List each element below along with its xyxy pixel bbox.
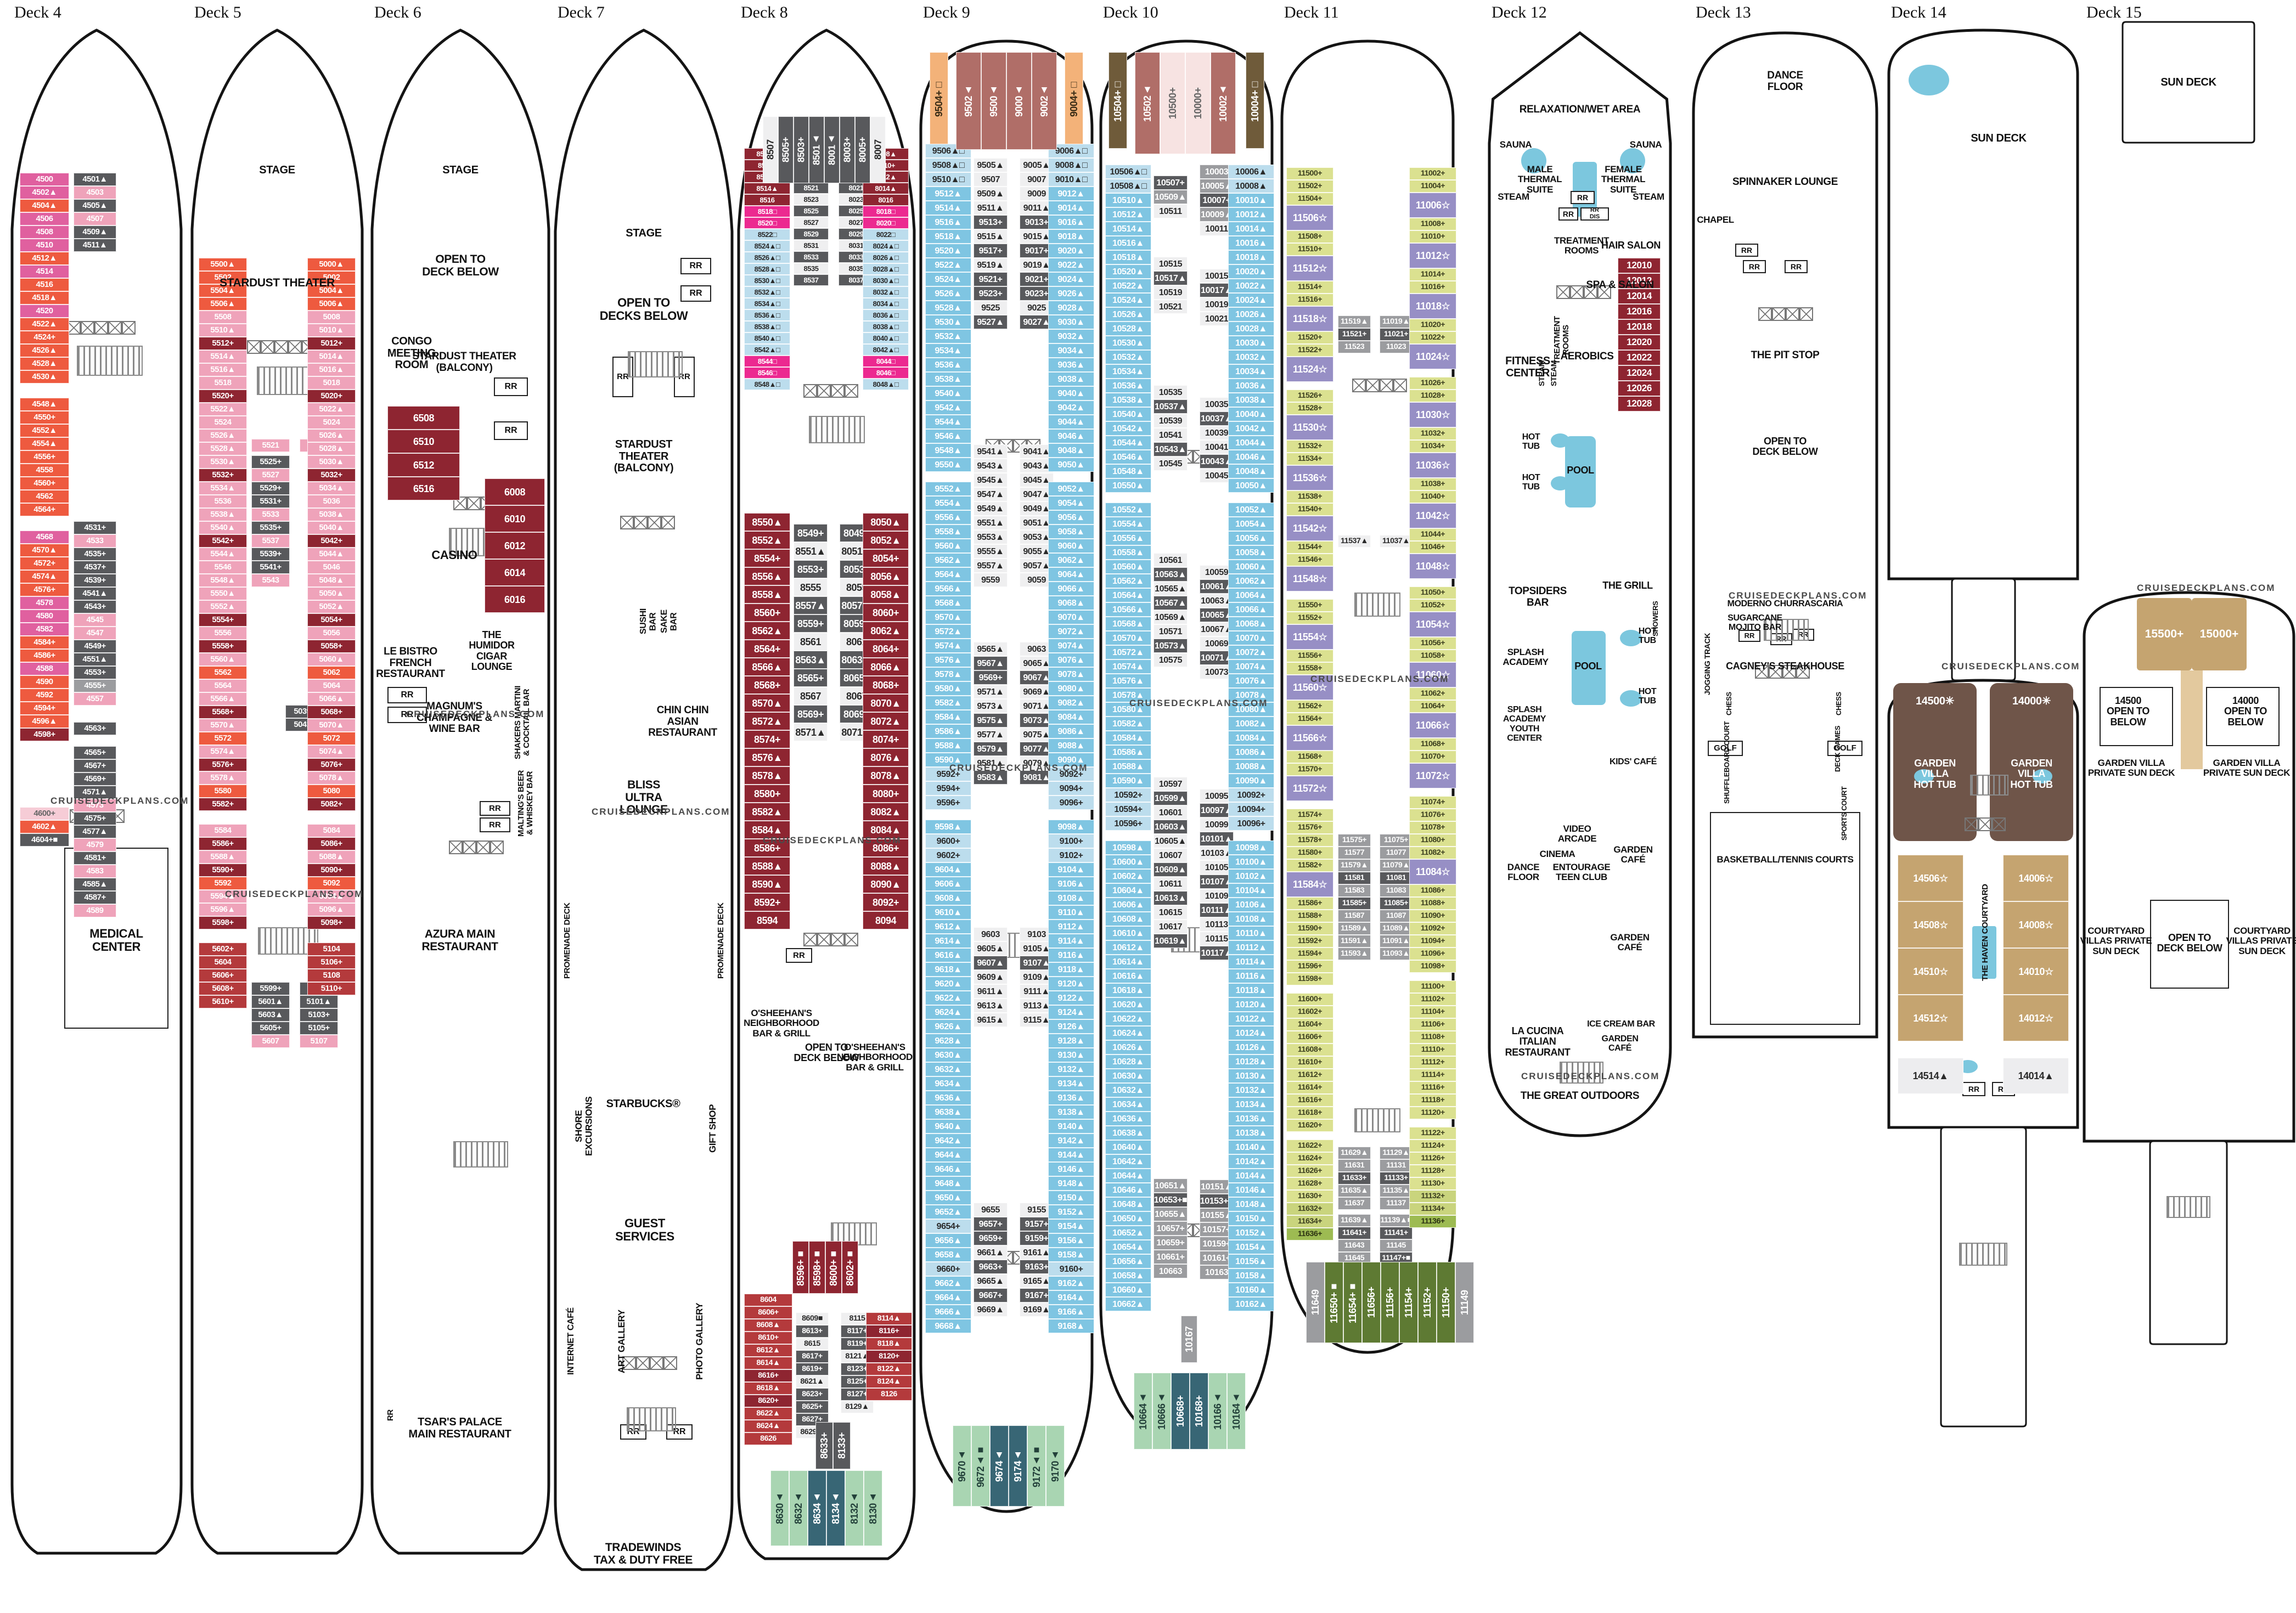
cabin[interactable]: 5586+	[199, 837, 247, 850]
cabin[interactable]: 8066▲	[863, 658, 909, 676]
cabin[interactable]: 11118+	[1409, 1094, 1456, 1107]
cabin[interactable]: 11081	[1380, 872, 1413, 884]
cabin[interactable]: 8556▲	[744, 567, 790, 585]
cabin[interactable]: 11030☆	[1409, 402, 1456, 427]
cabin[interactable]: 9604▲	[925, 862, 971, 877]
cabin[interactable]: 9644▲	[925, 1148, 971, 1162]
cabin[interactable]: 9642▲	[925, 1133, 971, 1148]
cabin[interactable]: 4516	[20, 278, 69, 291]
cabin[interactable]: 10640▲	[1105, 1140, 1151, 1154]
cabin[interactable]: 8620+	[744, 1395, 792, 1407]
cabin[interactable]: 11649	[1306, 1262, 1325, 1343]
cabin[interactable]: 10070▲	[1228, 631, 1274, 645]
cabin[interactable]: 11637	[1338, 1197, 1371, 1210]
cabin[interactable]: 4537+	[74, 561, 116, 574]
cabin[interactable]: 9016▲	[1048, 215, 1094, 229]
cabin[interactable]: 8070▲	[863, 694, 909, 712]
cabin[interactable]: 11133+	[1380, 1172, 1413, 1185]
cabin[interactable]: 11062+	[1409, 687, 1456, 700]
cabin[interactable]: 9648▲	[925, 1176, 971, 1191]
cabin[interactable]: 9120▲	[1048, 977, 1094, 991]
cabin[interactable]: 11010+	[1409, 230, 1456, 243]
cabin[interactable]: 4572+	[20, 557, 69, 570]
cabin[interactable]: 9168▲	[1048, 1319, 1094, 1333]
cabin[interactable]: 14514▲	[1898, 1058, 1963, 1094]
cabin[interactable]: 8032▲□	[863, 286, 909, 298]
cabin[interactable]: 11085+	[1380, 897, 1413, 910]
cabin[interactable]: 10663	[1153, 1264, 1188, 1278]
cabin[interactable]: 14508☆	[1898, 901, 1963, 948]
cabin[interactable]: 8540▲□	[744, 332, 790, 344]
cabin[interactable]: 8530▲□	[744, 275, 790, 286]
cabin[interactable]: 10142▲	[1228, 1154, 1274, 1169]
cabin[interactable]: 9074▲	[1048, 639, 1094, 653]
cabin[interactable]: 9661▲	[973, 1245, 1008, 1260]
cabin[interactable]: 10038▲	[1228, 393, 1274, 407]
cabin[interactable]: 11514+	[1286, 281, 1333, 294]
cabin[interactable]: 10609▲	[1153, 862, 1188, 877]
cabin[interactable]: 10122▲	[1228, 1012, 1274, 1026]
cabin[interactable]: 11610+	[1286, 1056, 1333, 1069]
cabin[interactable]: 9656▲	[925, 1233, 971, 1248]
cabin[interactable]: 8124▲	[866, 1375, 912, 1388]
cabin[interactable]: 9512▲	[925, 187, 971, 201]
cabin[interactable]: 10092+	[1228, 788, 1274, 802]
cabin[interactable]: 10601	[1153, 805, 1188, 820]
cabin[interactable]: 9114▲	[1048, 934, 1094, 948]
cabin[interactable]: 8544□	[744, 356, 790, 367]
cabin[interactable]: 9538▲	[925, 372, 971, 386]
cabin[interactable]: 8535	[794, 263, 829, 274]
cabin[interactable]: 5534▲	[199, 482, 247, 495]
cabin[interactable]: 8564+	[744, 640, 790, 658]
cabin[interactable]: 9630▲	[925, 1048, 971, 1062]
cabin[interactable]: 8578▲	[744, 766, 790, 785]
cabin[interactable]: 10592+	[1105, 788, 1151, 802]
cabin[interactable]: 10558▲	[1105, 545, 1151, 560]
elevator-icon[interactable]	[1772, 307, 1786, 321]
cabin[interactable]: 8528▲□	[744, 263, 790, 275]
cabin[interactable]: 9128▲	[1048, 1034, 1094, 1048]
cabin[interactable]: 10563▲	[1153, 567, 1188, 582]
cabin[interactable]: 8030▲□	[863, 275, 909, 286]
cabin[interactable]: 6014	[485, 559, 545, 586]
cabin[interactable]: 4585▲	[74, 878, 116, 891]
cabin[interactable]: 8507	[763, 116, 778, 183]
cabin[interactable]: 11586+	[1286, 897, 1333, 910]
cabin[interactable]: 11582+	[1286, 859, 1333, 872]
cabin[interactable]: 9134▲	[1048, 1076, 1094, 1091]
cabin[interactable]: 11098+	[1409, 960, 1456, 973]
elevator-icon[interactable]	[247, 340, 261, 354]
cabin[interactable]: 5566▲	[199, 692, 247, 706]
cabin[interactable]: 11092+	[1409, 922, 1456, 935]
cabin[interactable]: 8550▲	[744, 513, 790, 531]
cabin[interactable]: 10034▲	[1228, 364, 1274, 379]
cabin[interactable]: 11589▲	[1338, 922, 1371, 935]
cabin[interactable]: 5040▲	[307, 521, 356, 534]
cabin[interactable]: 4602▲	[20, 820, 69, 833]
cabin[interactable]: 8598+■	[809, 1241, 825, 1294]
cabin[interactable]: 8616+	[744, 1369, 792, 1382]
cabin[interactable]: 4518▲	[20, 291, 69, 304]
cabin[interactable]: 6512	[387, 453, 460, 477]
cabin[interactable]: 11004+	[1409, 180, 1456, 193]
cabin[interactable]: 6508	[387, 406, 460, 430]
cabin[interactable]: 9034▲	[1048, 343, 1094, 358]
cabin[interactable]: 10072▲	[1228, 645, 1274, 659]
cabin[interactable]: 11082+	[1409, 847, 1456, 859]
cabin[interactable]: 10024▲	[1228, 293, 1274, 307]
cabin[interactable]: 10506▲□	[1105, 165, 1151, 179]
cabin[interactable]: 8560+	[744, 604, 790, 622]
cabin[interactable]: 5541+	[251, 561, 290, 574]
cabin[interactable]: 9610▲	[925, 905, 971, 920]
cabin[interactable]: 4531+	[74, 521, 116, 534]
cabin[interactable]: 8554+	[744, 549, 790, 567]
cabin[interactable]: 10556▲	[1105, 531, 1151, 545]
cabin[interactable]: 10154▲	[1228, 1240, 1274, 1254]
cabin[interactable]: 9573▲	[973, 699, 1008, 713]
cabin[interactable]: 10030▲	[1228, 336, 1274, 350]
cabin[interactable]: 11532+	[1286, 440, 1333, 453]
cabin[interactable]: 4584+	[20, 636, 69, 649]
cabin[interactable]: 9668▲	[925, 1319, 971, 1333]
cabin[interactable]: 11542☆	[1286, 516, 1333, 541]
cabin[interactable]: 11154+	[1399, 1262, 1418, 1343]
cabin[interactable]: 8038▲□	[863, 321, 909, 332]
cabin[interactable]: 8625+	[796, 1401, 829, 1413]
cabin[interactable]: 4567+	[74, 759, 116, 772]
elevator-icon[interactable]	[817, 933, 831, 946]
cabin[interactable]: 10574▲	[1105, 659, 1151, 674]
cabin[interactable]: 10140▲	[1228, 1140, 1274, 1154]
cabin[interactable]: 10620▲	[1105, 997, 1151, 1012]
cabin[interactable]: 11614+	[1286, 1081, 1333, 1094]
cabin[interactable]: 8536▲□	[744, 309, 790, 321]
cabin[interactable]: 5560▲	[199, 653, 247, 666]
cabin[interactable]: 9521+	[973, 272, 1008, 286]
cabin[interactable]: 10167	[1181, 1316, 1197, 1363]
cabin[interactable]: 11656+	[1362, 1262, 1381, 1343]
cabin[interactable]: 8576▲	[744, 748, 790, 766]
cabin[interactable]: 5088▲	[307, 850, 356, 864]
cabin[interactable]: 8562▲	[744, 622, 790, 640]
cabin[interactable]: 5105+	[300, 1022, 338, 1035]
cabin[interactable]: 14006☆	[2003, 855, 2069, 901]
cabin[interactable]: 9602+	[925, 848, 971, 862]
cabin[interactable]: 4528▲	[20, 357, 69, 370]
cabin[interactable]: 8600+■	[825, 1241, 842, 1294]
cabin[interactable]: 8052▲	[863, 531, 909, 549]
cabin[interactable]: 9058▲	[1048, 524, 1094, 539]
cabin[interactable]: 8590▲	[744, 875, 790, 893]
cabin[interactable]: 8056▲	[863, 567, 909, 585]
cabin[interactable]: 9614▲	[925, 934, 971, 948]
cabin[interactable]: 11632+	[1286, 1203, 1333, 1215]
cabin[interactable]: 5026▲	[307, 429, 356, 442]
cabin[interactable]: 8514▲	[744, 183, 790, 194]
elevator-icon[interactable]	[122, 321, 136, 335]
cabin[interactable]: 10518▲	[1105, 250, 1151, 264]
cabin[interactable]: 9516▲	[925, 215, 971, 229]
cabin[interactable]: 10022▲	[1228, 279, 1274, 293]
cabin[interactable]: 8623+	[796, 1388, 829, 1401]
cabin[interactable]: 4533	[74, 534, 116, 548]
cabin[interactable]: 10156▲	[1228, 1254, 1274, 1268]
cabin[interactable]: 9056▲	[1048, 510, 1094, 524]
cabin[interactable]: 5530▲	[199, 455, 247, 469]
cabin[interactable]: 11510+	[1286, 243, 1333, 256]
cabin[interactable]: 10504+□	[1108, 52, 1127, 149]
cabin[interactable]: 10010▲	[1228, 193, 1274, 207]
cabin[interactable]: 10544▲	[1105, 436, 1151, 450]
cabin[interactable]: 9072▲	[1048, 624, 1094, 639]
cabin[interactable]: 9624▲	[925, 1005, 971, 1019]
cabin[interactable]: 10662▲	[1105, 1297, 1151, 1311]
cabin[interactable]: 11126+	[1409, 1152, 1456, 1165]
cabin[interactable]: 8062▲	[863, 622, 909, 640]
cabin[interactable]: 11592+	[1286, 935, 1333, 948]
cabin[interactable]: 8005+	[855, 116, 870, 183]
cabin[interactable]: 11608+	[1286, 1044, 1333, 1056]
cabin[interactable]: 5078▲	[307, 771, 356, 785]
cabin[interactable]: 8116+	[866, 1325, 912, 1338]
cabin[interactable]: 4524+	[20, 331, 69, 344]
cabin[interactable]: 9150▲	[1048, 1191, 1094, 1205]
elevator-icon[interactable]	[845, 933, 858, 946]
cabin[interactable]: 11538+	[1286, 490, 1333, 503]
cabin[interactable]: 8523	[794, 194, 829, 205]
cabin[interactable]: 10626▲	[1105, 1040, 1151, 1054]
cabin[interactable]: 11072☆	[1409, 763, 1456, 788]
cabin[interactable]: 10112▲	[1228, 940, 1274, 955]
cabin[interactable]: 4579	[74, 838, 116, 851]
elevator-icon[interactable]	[261, 340, 274, 354]
cabin[interactable]: 10575	[1153, 653, 1188, 667]
cabin[interactable]: 9504+□	[930, 52, 948, 144]
cabin[interactable]: 4598+	[20, 728, 69, 741]
cabin[interactable]: 4508	[20, 225, 69, 239]
cabin[interactable]: 9674▲	[990, 1425, 1009, 1507]
cabin[interactable]: 10008▲	[1228, 179, 1274, 193]
cabin[interactable]: 10104▲	[1228, 883, 1274, 898]
cabin[interactable]: 10502▲	[1135, 52, 1160, 154]
cabin[interactable]: 11054☆	[1409, 612, 1456, 637]
cabin[interactable]: 11048☆	[1409, 554, 1456, 579]
cabin[interactable]: 9040▲	[1048, 386, 1094, 401]
cabin[interactable]: 5108	[307, 969, 356, 982]
cabin[interactable]: 5086+	[307, 837, 356, 850]
cabin[interactable]: 5064	[307, 679, 356, 692]
cabin[interactable]: 8609■	[796, 1312, 829, 1325]
stairs-icon[interactable]	[627, 1407, 676, 1431]
cabin[interactable]: 11612+	[1286, 1069, 1333, 1081]
cabin[interactable]: 11076+	[1409, 809, 1456, 821]
cabin[interactable]: 5608+	[199, 982, 247, 995]
cabin[interactable]: 9646▲	[925, 1162, 971, 1176]
cabin[interactable]: 5537	[251, 534, 290, 548]
cabin[interactable]: 11575+	[1338, 834, 1371, 847]
elevator-icon[interactable]	[1352, 379, 1366, 392]
cabin[interactable]: 8129▲	[841, 1401, 874, 1413]
cabin[interactable]: 10552▲	[1105, 503, 1151, 517]
cabin[interactable]: 8529	[794, 228, 829, 240]
cabin[interactable]: 5032+	[307, 469, 356, 482]
cabin[interactable]: 5540▲	[199, 521, 247, 534]
cabin[interactable]: 9576▲	[925, 653, 971, 667]
cabin[interactable]: 8569+	[794, 705, 828, 723]
cabin[interactable]: 11519▲	[1338, 315, 1371, 328]
cabin[interactable]: 11588+	[1286, 910, 1333, 922]
elevator-icon[interactable]	[81, 321, 94, 335]
cabin[interactable]: 14010☆	[2003, 948, 2069, 995]
cabin[interactable]: 5066▲	[307, 692, 356, 706]
cabin[interactable]: 10500+	[1160, 52, 1185, 154]
cabin[interactable]: 10006▲	[1228, 165, 1274, 179]
cabin[interactable]: 8058▲	[863, 585, 909, 604]
cabin[interactable]: 9112▲	[1048, 920, 1094, 934]
cabin[interactable]: 11506☆	[1286, 205, 1333, 230]
cabin[interactable]: 4575+	[74, 812, 116, 825]
cabin[interactable]: 9609▲	[973, 970, 1008, 984]
cabin[interactable]: 10611	[1153, 877, 1188, 891]
cabin[interactable]: 11032+	[1409, 427, 1456, 440]
cabin[interactable]: 4576+	[20, 583, 69, 596]
cabin[interactable]: 9650▲	[925, 1191, 971, 1205]
cabin[interactable]: 4511▲	[74, 239, 116, 252]
cabin[interactable]: 5596▲	[199, 903, 247, 916]
cabin[interactable]: 4514	[20, 265, 69, 278]
cabin[interactable]: 10507+	[1153, 176, 1188, 190]
cabin[interactable]: 11075+	[1380, 834, 1413, 847]
cabin[interactable]: 9654+	[925, 1219, 971, 1233]
cabin[interactable]: 5096▲	[307, 903, 356, 916]
cabin[interactable]: 11044+	[1409, 528, 1456, 541]
cabin[interactable]: 9553▲	[973, 530, 1008, 544]
cabin[interactable]: 8612▲	[744, 1344, 792, 1357]
cabin[interactable]: 4582	[20, 623, 69, 636]
cabin[interactable]: 10118▲	[1228, 983, 1274, 997]
cabin[interactable]: 5058+	[307, 640, 356, 653]
cabin[interactable]: 5578▲	[199, 771, 247, 785]
elevator-icon[interactable]	[634, 516, 648, 529]
cabin[interactable]: 9616▲	[925, 948, 971, 962]
cabin[interactable]: 8122▲	[866, 1363, 912, 1375]
cabin[interactable]: 4550+	[20, 411, 69, 424]
cabin[interactable]: 5034▲	[307, 482, 356, 495]
cabin[interactable]: 5533	[251, 508, 290, 521]
cabin[interactable]: 9525	[973, 301, 1008, 315]
cabin[interactable]: 10628▲	[1105, 1054, 1151, 1069]
cabin-15000[interactable]: 15000+	[2192, 598, 2247, 670]
cabin[interactable]: 5020+	[307, 390, 356, 403]
cabin[interactable]: 11624+	[1286, 1152, 1333, 1165]
cabin[interactable]: 5103+	[300, 1008, 338, 1022]
cabin[interactable]: 9568▲	[925, 596, 971, 610]
elevator-icon[interactable]	[661, 516, 675, 529]
cabin[interactable]: 8042▲□	[863, 344, 909, 356]
cabin[interactable]: 8551▲	[794, 542, 828, 560]
cabin[interactable]: 10642▲	[1105, 1154, 1151, 1169]
cabin[interactable]: 4501▲	[74, 173, 116, 186]
cabin[interactable]: 10032▲	[1228, 350, 1274, 364]
cabin[interactable]: 8561	[794, 633, 828, 651]
cabin[interactable]: 5014▲	[307, 350, 356, 363]
elevator-icon[interactable]	[490, 841, 504, 854]
cabin[interactable]: 10148▲	[1228, 1197, 1274, 1211]
cabin[interactable]: 8592+	[744, 893, 790, 911]
cabin[interactable]: 8527	[794, 217, 829, 228]
cabin[interactable]: 10064▲	[1228, 588, 1274, 602]
cabin[interactable]: 4543+	[74, 600, 116, 613]
cabin[interactable]: 11106+	[1409, 1018, 1456, 1031]
cabin[interactable]: 11129▲	[1380, 1147, 1413, 1159]
cabin[interactable]: 9062▲	[1048, 553, 1094, 567]
cabin[interactable]: 10130▲	[1228, 1069, 1274, 1083]
cabin[interactable]: 8526▲□	[744, 252, 790, 263]
cabin[interactable]: 11536☆	[1286, 465, 1333, 490]
cabin[interactable]: 9664▲	[925, 1290, 971, 1305]
cabin[interactable]: 5500▲	[199, 258, 247, 271]
cabin[interactable]: 11643	[1338, 1239, 1371, 1252]
cabin[interactable]: 10144▲	[1228, 1169, 1274, 1183]
cabin[interactable]: 11546+	[1286, 554, 1333, 566]
cabin[interactable]: 10524▲	[1105, 293, 1151, 307]
cabin[interactable]: 5008	[307, 311, 356, 324]
cabin[interactable]: 10565▲	[1153, 582, 1188, 596]
cabin[interactable]: 10514▲	[1105, 222, 1151, 236]
cabin[interactable]: 11508+	[1286, 230, 1333, 243]
cabin[interactable]: 8068+	[863, 676, 909, 694]
cabin[interactable]: 11596+	[1286, 960, 1333, 973]
cabin[interactable]: 8606+	[744, 1306, 792, 1319]
elevator-icon[interactable]	[1366, 379, 1380, 392]
cabin[interactable]: 10164▲	[1227, 1373, 1246, 1450]
cabin[interactable]: 9520▲	[925, 244, 971, 258]
cabin[interactable]: 11516+	[1286, 294, 1333, 306]
cabin[interactable]: 9606▲	[925, 877, 971, 891]
cabin[interactable]: 9549▲	[973, 501, 1008, 516]
cabin[interactable]: 11068+	[1409, 738, 1456, 751]
cabin[interactable]: 9513+	[973, 215, 1008, 229]
cabin[interactable]: 12010	[1618, 258, 1661, 273]
cabin[interactable]: 10108▲	[1228, 912, 1274, 926]
cabin[interactable]: 5044▲	[307, 548, 356, 561]
cabin[interactable]: 9660+	[925, 1262, 971, 1276]
cabin[interactable]: 9578▲	[925, 667, 971, 681]
cabin[interactable]: 11639▲	[1338, 1214, 1371, 1227]
cabin[interactable]: 11083	[1380, 884, 1413, 897]
cabin[interactable]: 10560▲	[1105, 560, 1151, 574]
cabin[interactable]: 11554☆	[1286, 624, 1333, 650]
elevator-icon[interactable]	[288, 340, 302, 354]
cabin[interactable]: 12024	[1618, 365, 1661, 381]
cabin[interactable]: 5506▲	[199, 297, 247, 311]
cabin[interactable]: 11606+	[1286, 1031, 1333, 1044]
cabin[interactable]: 4554▲	[20, 437, 69, 450]
cabin[interactable]: 10509▲	[1153, 190, 1188, 204]
cabin[interactable]: 11604+	[1286, 1018, 1333, 1031]
cabin[interactable]: 11034+	[1409, 440, 1456, 453]
cabin[interactable]: 11524☆	[1286, 357, 1333, 382]
cabin[interactable]: 11104+	[1409, 1006, 1456, 1018]
cabin[interactable]: 5022▲	[307, 403, 356, 416]
cabin[interactable]: 10074▲	[1228, 659, 1274, 674]
cabin[interactable]: 5548▲	[199, 574, 247, 587]
cabin[interactable]: 11593▲	[1338, 948, 1371, 960]
cabin[interactable]: 9584▲	[925, 710, 971, 724]
